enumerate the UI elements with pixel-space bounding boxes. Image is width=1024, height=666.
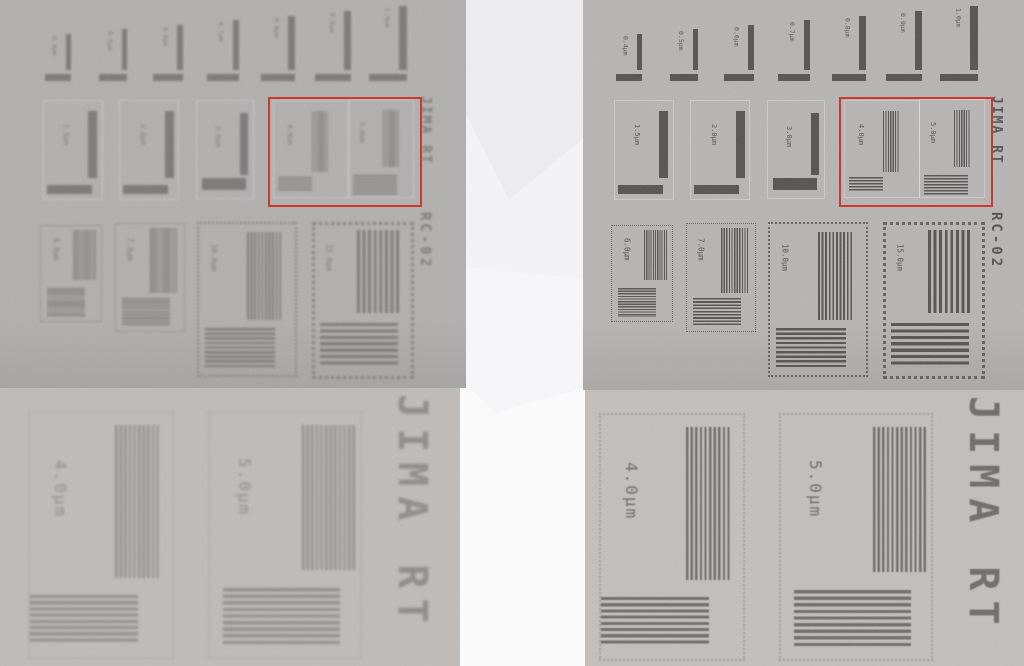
pattern-size-label: 0.8μm bbox=[844, 18, 851, 38]
elbow-vertical-bar bbox=[66, 34, 71, 70]
bar-horizontal bbox=[123, 185, 168, 194]
line-pattern-horizontal bbox=[891, 323, 969, 365]
pattern-size-label: 0.9μm bbox=[900, 13, 907, 33]
chart-title-vertical: JIMA RT bbox=[963, 396, 1003, 635]
bar-horizontal bbox=[202, 178, 246, 190]
bar-vertical bbox=[88, 111, 97, 178]
line-pattern-vertical bbox=[721, 228, 748, 293]
pattern-size-label: 15.0μm bbox=[896, 244, 904, 271]
elbow-horizontal-bar bbox=[940, 74, 978, 81]
elbow-horizontal-bar bbox=[670, 74, 698, 81]
line-pattern-horizontal bbox=[30, 595, 138, 643]
pattern-size-label: 0.9μm bbox=[329, 13, 336, 33]
line-pattern-horizontal bbox=[223, 588, 340, 645]
bar-vertical bbox=[811, 113, 819, 175]
line-pattern-horizontal bbox=[47, 288, 85, 317]
elbow-horizontal-bar bbox=[261, 74, 295, 81]
line-pattern-vertical bbox=[357, 230, 402, 313]
pattern-size-label: 0.7μm bbox=[218, 22, 225, 42]
pattern-size-label: 7.0μm bbox=[697, 238, 705, 261]
bar-horizontal bbox=[47, 185, 92, 194]
line-pattern-vertical bbox=[873, 427, 926, 572]
pattern-size-label: 1.0μm bbox=[955, 8, 962, 28]
line-pattern-horizontal bbox=[205, 328, 275, 368]
elbow-vertical-bar bbox=[859, 16, 866, 70]
bar-horizontal bbox=[694, 185, 739, 194]
line-pattern-vertical bbox=[150, 228, 177, 293]
pattern-size-label: 2.0μm bbox=[139, 124, 146, 145]
line-pattern-vertical bbox=[115, 425, 160, 578]
radiograph-zoom-region-right: 4.0μm5.0μmJIMA RT bbox=[585, 390, 1024, 666]
pattern-size-label: 2.0μm bbox=[710, 124, 717, 145]
zoom-content: 4.0μm5.0μmJIMA RT bbox=[0, 388, 460, 666]
line-pattern-horizontal bbox=[693, 298, 741, 327]
pattern-size-label: 6.0μm bbox=[52, 238, 60, 261]
pattern-size-label: 0.5μm bbox=[107, 31, 114, 51]
line-pattern-horizontal bbox=[601, 597, 709, 645]
pattern-size-label: 0.6μm bbox=[162, 27, 169, 47]
pattern-size-label: 3.0μm bbox=[785, 126, 792, 147]
line-pattern-horizontal bbox=[320, 323, 398, 365]
pattern-size-label: 0.6μm bbox=[733, 27, 740, 47]
bar-vertical bbox=[736, 111, 745, 178]
bar-horizontal bbox=[618, 185, 663, 194]
elbow-horizontal-bar bbox=[616, 74, 642, 81]
pattern-size-label: 0.7μm bbox=[789, 22, 796, 42]
pattern-size-label: 5.0μm bbox=[807, 460, 823, 518]
line-pattern-vertical bbox=[247, 232, 282, 320]
line-pattern-horizontal bbox=[794, 590, 911, 647]
radiograph-full-chart-right: 0.4μm0.5μm0.6μm0.7μm0.8μm0.9μm1.0μm1.5μm… bbox=[583, 0, 1024, 390]
pattern-size-label: 4.0μm bbox=[623, 462, 639, 520]
pattern-size-label: 0.8μm bbox=[273, 18, 280, 38]
highlight-rectangle bbox=[268, 97, 422, 207]
elbow-vertical-bar bbox=[288, 16, 295, 70]
divider-strip bbox=[455, 0, 590, 666]
bar-vertical bbox=[659, 111, 668, 178]
highlight-rectangle bbox=[839, 97, 993, 207]
elbow-horizontal-bar bbox=[778, 74, 810, 81]
radiograph-full-chart-left: 0.4μm0.5μm0.6μm0.7μm0.8μm0.9μm1.0μm1.5μm… bbox=[0, 0, 466, 388]
chart-code-vertical: RC-02 bbox=[418, 212, 432, 269]
elbow-vertical-bar bbox=[637, 34, 642, 70]
line-pattern-vertical bbox=[818, 232, 853, 320]
line-pattern-vertical bbox=[686, 427, 731, 580]
pattern-size-label: 6.0μm bbox=[623, 238, 631, 261]
line-pattern-horizontal bbox=[618, 288, 656, 317]
pattern-size-label: 7.0μm bbox=[126, 238, 134, 261]
zoom-content: 4.0μm5.0μmJIMA RT bbox=[585, 390, 1024, 666]
elbow-horizontal-bar bbox=[207, 74, 239, 81]
line-pattern-vertical bbox=[302, 425, 355, 570]
elbow-horizontal-bar bbox=[832, 74, 866, 81]
line-pattern-vertical bbox=[928, 230, 973, 313]
elbow-horizontal-bar bbox=[724, 74, 754, 81]
elbow-vertical-bar bbox=[233, 20, 240, 70]
pattern-size-label: 0.5μm bbox=[678, 31, 685, 51]
pattern-size-label: 1.5μm bbox=[62, 124, 69, 145]
pattern-size-label: 0.4μm bbox=[622, 36, 629, 56]
elbow-horizontal-bar bbox=[369, 74, 407, 81]
elbow-horizontal-bar bbox=[45, 74, 71, 81]
bar-vertical bbox=[240, 113, 248, 175]
elbow-horizontal-bar bbox=[315, 74, 351, 81]
elbow-horizontal-bar bbox=[153, 74, 183, 81]
elbow-vertical-bar bbox=[344, 11, 352, 70]
line-pattern-horizontal bbox=[776, 328, 846, 368]
elbow-vertical-bar bbox=[122, 29, 128, 70]
pattern-size-label: 5.0μm bbox=[236, 458, 252, 516]
elbow-vertical-bar bbox=[804, 20, 811, 70]
chart-code-vertical: RC-02 bbox=[989, 212, 1003, 269]
elbow-vertical-bar bbox=[177, 25, 183, 70]
pattern-size-label: 10.0μm bbox=[781, 244, 789, 271]
pattern-size-label: 1.5μm bbox=[633, 124, 640, 145]
elbow-vertical-bar bbox=[970, 6, 978, 70]
line-pattern-horizontal bbox=[122, 298, 170, 327]
pattern-size-label: 10.0μm bbox=[210, 244, 218, 271]
pattern-size-label: 1.0μm bbox=[384, 8, 391, 28]
elbow-horizontal-bar bbox=[886, 74, 922, 81]
elbow-vertical-bar bbox=[693, 29, 699, 70]
line-pattern-vertical bbox=[644, 230, 668, 280]
elbow-vertical-bar bbox=[748, 25, 754, 70]
pattern-size-label: 4.0μm bbox=[52, 460, 68, 518]
bar-vertical bbox=[165, 111, 174, 178]
elbow-horizontal-bar bbox=[99, 74, 127, 81]
pattern-size-label: 0.4μm bbox=[51, 36, 58, 56]
pattern-size-label: 3.0μm bbox=[214, 126, 221, 147]
chart-title-vertical: JIMA RT bbox=[392, 394, 432, 633]
line-pattern-vertical bbox=[73, 230, 97, 280]
pattern-size-label: 15.0μm bbox=[325, 244, 333, 271]
elbow-vertical-bar bbox=[915, 11, 923, 70]
radiograph-zoom-region-left: 4.0μm5.0μmJIMA RT bbox=[0, 388, 460, 666]
bar-horizontal bbox=[773, 178, 817, 190]
elbow-vertical-bar bbox=[399, 6, 407, 70]
